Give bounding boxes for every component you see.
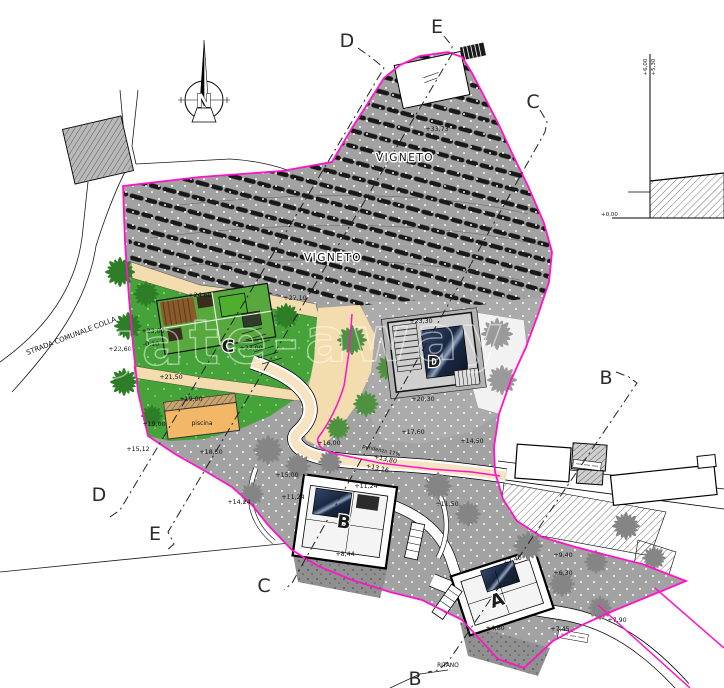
site-plan-canvas: N bbox=[0, 0, 724, 688]
elevation-label: +14,24 bbox=[227, 499, 250, 506]
elevation-label: +20,30 bbox=[411, 396, 434, 403]
elevation-label: +7,45 bbox=[550, 626, 569, 633]
area-label: piscina bbox=[191, 420, 212, 427]
section-marker-letter: E bbox=[431, 16, 443, 38]
elevation-label: +7,90 bbox=[607, 617, 626, 624]
elevation-label: +19,00 bbox=[142, 421, 165, 428]
section-elevation-label: +6,00 bbox=[643, 58, 649, 75]
section-marker-letter: C bbox=[526, 91, 539, 113]
section-marker-letter: E bbox=[149, 523, 161, 545]
section-marker-letter: D bbox=[92, 484, 107, 506]
section-marker-letter: B bbox=[599, 367, 612, 389]
elevation-label: +15,12 bbox=[126, 446, 149, 453]
elevation-label: +16,00 bbox=[317, 440, 340, 447]
section-elevation-label: +5,30 bbox=[651, 58, 657, 75]
area-label: VIGNETO bbox=[376, 152, 434, 164]
compass-north-letter: N bbox=[196, 90, 212, 112]
section-marker-letter: B bbox=[408, 668, 421, 688]
section-detail bbox=[612, 54, 724, 218]
elevation-label: +6,30 bbox=[553, 570, 572, 577]
area-label: VIGNETO bbox=[304, 252, 362, 264]
north-arrow-compass: N bbox=[178, 40, 230, 122]
elevation-label: +9,40 bbox=[553, 552, 572, 559]
neighbour-building-1 bbox=[515, 444, 571, 482]
neighbour-building-hatched bbox=[62, 116, 133, 184]
elevation-label: +18,50 bbox=[199, 449, 222, 456]
elevation-label: +27,10 bbox=[283, 295, 306, 302]
elevation-label: +19,00 bbox=[179, 396, 202, 403]
house-label: B bbox=[336, 511, 353, 534]
watermark-text: gate-away bbox=[90, 300, 508, 380]
elevation-label: +8,44 bbox=[335, 551, 354, 558]
elevation-label: +11,24 bbox=[354, 483, 377, 490]
area-label: RITANO bbox=[437, 663, 459, 669]
section-elevation-label: +0,00 bbox=[601, 212, 618, 218]
elevation-label: +15,00 bbox=[275, 472, 298, 479]
elevation-label: +14,50 bbox=[460, 438, 483, 445]
elevation-label: +11,50 bbox=[435, 501, 458, 508]
elevation-label: +24,60 bbox=[188, 292, 211, 299]
elevation-label: +17,60 bbox=[401, 429, 424, 436]
elevation-label: +33,73 bbox=[425, 126, 448, 133]
section-marker-letter: C bbox=[257, 575, 270, 597]
watermark-layer: gate-away bbox=[90, 300, 508, 380]
section-marker-letter: D bbox=[340, 30, 355, 52]
elevation-label: +11,24 bbox=[281, 494, 304, 501]
elevation-label: +4,60 bbox=[485, 625, 504, 632]
